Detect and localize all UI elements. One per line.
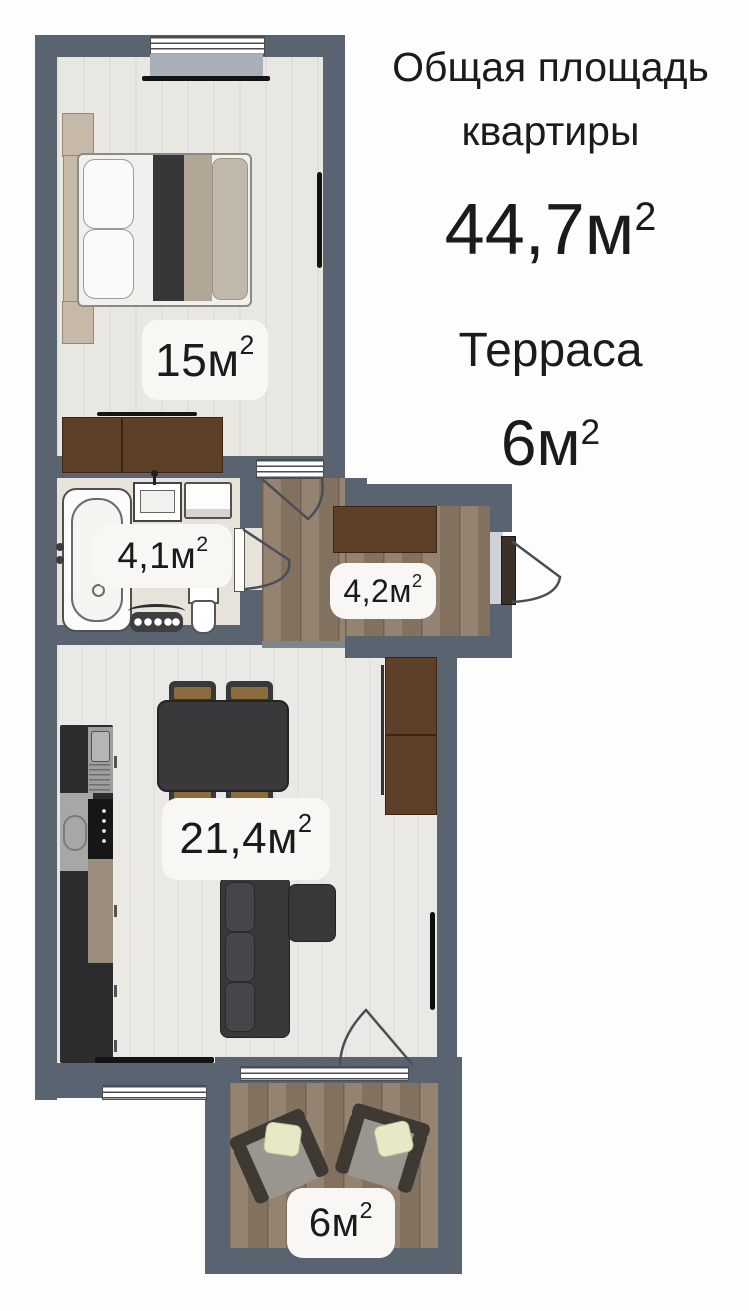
bedroom-dresser: [62, 417, 223, 473]
entry-door-leaf-line: [513, 542, 560, 577]
living-wall-right: [437, 645, 457, 1063]
bedroom-window-sill: [150, 54, 263, 77]
living-windowsill-line: [95, 1057, 214, 1063]
kitchen-sink-basin: [91, 731, 110, 762]
sink-faucet-icon: [151, 470, 158, 477]
bathroom-wall-divider-lower: [240, 590, 262, 645]
summary-title-line2: квартиры: [352, 100, 749, 164]
sofa-chaise: [288, 884, 336, 942]
summary-title-line1: Общая площадь: [352, 36, 749, 100]
living-wardrobe-door-line: [381, 665, 384, 795]
bathroom-sink: [133, 482, 182, 522]
bed-blanket-roll: [212, 158, 248, 300]
terrace-window: [240, 1066, 409, 1081]
bathroom-area-label: 4,1м2: [94, 524, 232, 588]
towel-radiator-coil: [130, 612, 183, 632]
nightstand-top: [62, 113, 94, 157]
kitchen-drainboard: [89, 764, 110, 791]
terrace-wall-left: [205, 1083, 229, 1253]
bathroom-wall-divider-upper: [240, 478, 262, 528]
bedroom-tv-icon: [317, 172, 322, 268]
cabinet-handle-icon: [114, 1040, 117, 1052]
terrace-area-value: 6м2: [352, 406, 749, 480]
hallway-wall-right-upper: [490, 484, 512, 532]
bed-blanket: [184, 155, 212, 301]
cabinet-handle-icon: [114, 756, 117, 768]
cabinet-handle-icon: [114, 905, 117, 917]
terrace-area-sup-main: 2: [581, 413, 601, 452]
bedroom-door-threshold: [256, 459, 324, 479]
washing-machine-front: [186, 509, 230, 517]
washing-machine: [184, 482, 232, 519]
hallway-floor: [262, 478, 345, 643]
bedroom-wall-left: [35, 35, 57, 478]
bathroom-area-value: 4,1м: [117, 535, 196, 577]
hallway-area-label: 4,2м2: [330, 563, 436, 619]
total-area-number: 44,7м: [445, 190, 635, 270]
terrace-area-label: 6м2: [287, 1188, 395, 1258]
summary-panel: Общая площадь квартиры 44,7м2 Терраса 6м…: [352, 0, 749, 480]
terrace-area-value: 6м: [309, 1201, 360, 1246]
armchair-pillow: [263, 1121, 303, 1158]
bed-pillow: [83, 229, 134, 299]
sofa: [220, 876, 290, 1038]
terrace-wall-right: [438, 1083, 462, 1253]
living-wardrobe: [385, 657, 437, 815]
dresser-divider: [121, 418, 123, 472]
wardrobe-divider: [386, 734, 436, 736]
bathtub-faucet-icon: [56, 556, 64, 564]
bathroom-area-sup: 2: [196, 532, 208, 557]
bathroom-wall-left: [35, 478, 57, 645]
sink-basin: [140, 490, 175, 513]
living-area-label: 21,4м2: [162, 798, 330, 880]
bed-runner-dark: [153, 155, 184, 301]
total-area-sup: 2: [634, 195, 656, 239]
cabinet-handle-icon: [114, 985, 117, 997]
entry-door-leaf: [501, 536, 516, 605]
sofa-cushion: [225, 982, 255, 1032]
sofa-cushion: [225, 882, 255, 932]
living-tv-icon: [430, 912, 435, 1010]
kitchen-counter: [88, 859, 113, 963]
terrace-area-sup: 2: [360, 1197, 373, 1224]
floor-plan: 15м2 4,1м2 4,2м2 21,4м2 6м2 Общая площад…: [0, 0, 749, 1311]
bed-pillow: [83, 159, 134, 229]
nightstand-bottom: [62, 301, 94, 344]
dresser-top-line: [97, 412, 197, 416]
bathtub-faucet-icon: [56, 543, 64, 551]
hallway-living-threshold: [262, 641, 345, 648]
entry-door-arc: [513, 577, 560, 602]
terrace-area-number: 6м: [501, 407, 581, 479]
oven-handle: [63, 815, 87, 851]
cooktop: [88, 799, 113, 859]
total-area-value: 44,7м2: [352, 189, 749, 271]
sofa-cushion: [225, 932, 255, 982]
bed: [77, 153, 252, 307]
living-area-value: 21,4м: [179, 814, 297, 864]
bedroom-area-value: 15м: [155, 333, 239, 387]
bedroom-area-label: 15м2: [142, 320, 268, 400]
hallway-wardrobe: [333, 506, 437, 553]
toilet-bowl: [191, 600, 216, 634]
kitchen-sink-unit: [88, 727, 113, 793]
bathroom-door-leaf: [234, 528, 245, 592]
hallway-wall-bottom: [345, 636, 512, 658]
bedroom-area-sup: 2: [239, 330, 254, 361]
hallway-area-sup: 2: [412, 570, 423, 592]
dining-table: [157, 700, 289, 792]
bedroom-wall-right: [323, 35, 345, 478]
living-area-sup: 2: [298, 810, 313, 839]
hallway-area-value: 4,2м: [343, 573, 411, 610]
bedroom-window: [150, 36, 265, 56]
living-wall-left: [35, 645, 57, 1100]
living-window: [102, 1085, 207, 1100]
terrace-title: Терраса: [352, 323, 749, 378]
bedroom-windowsill-line: [142, 76, 270, 81]
hallway-wall-top: [345, 484, 512, 506]
